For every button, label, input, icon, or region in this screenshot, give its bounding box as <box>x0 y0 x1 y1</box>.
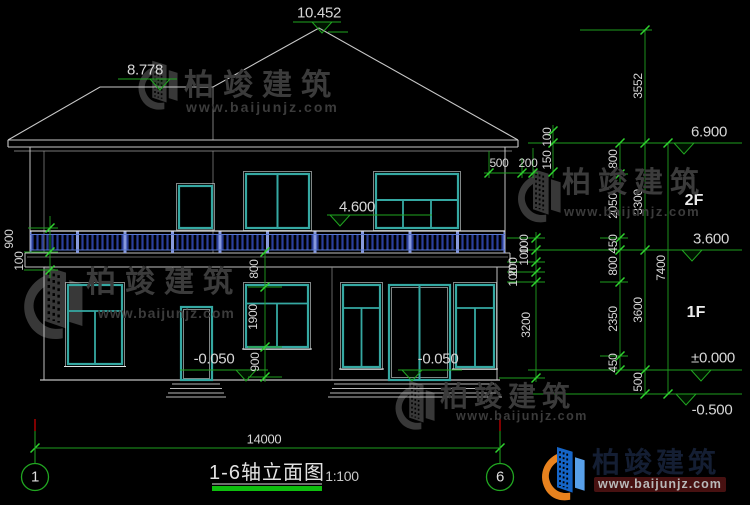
elevation-label-entry-right: -0.050 <box>418 352 459 367</box>
axis-bubble-6: 6 <box>496 470 504 485</box>
watermark-url: www.baijunjz.com <box>98 306 235 320</box>
dim-label: 500 <box>632 372 644 391</box>
watermark-brand: 柏竣建筑 <box>86 268 242 298</box>
dim-label: 800 <box>607 149 619 168</box>
window-frames-2f <box>179 174 458 228</box>
dim-label: 450 <box>607 234 619 253</box>
elevation-label-zero: ±0.000 <box>691 351 735 366</box>
dim-label: 3600 <box>632 297 644 323</box>
dim-label: 7400 <box>655 255 667 281</box>
dim-label: 900 <box>3 229 15 248</box>
floor-label-1f: 1F <box>687 305 706 321</box>
dim-label: 1900 <box>247 304 259 330</box>
watermark-url: www.baijunjz.com <box>186 100 339 114</box>
elevation-label-balcony: 4.600 <box>339 200 375 215</box>
drawing-scale: 1:100 <box>325 469 359 483</box>
dim-label: 100 <box>13 251 25 270</box>
second-floor-openings <box>177 172 461 231</box>
dim-label: 150 <box>541 150 553 169</box>
axis-bubble-1: 1 <box>31 470 39 485</box>
brand-logo-url: www.baijunjz.com <box>594 477 726 492</box>
dim-label: 800 <box>607 256 619 275</box>
dim-label: 200 <box>518 157 537 169</box>
elevation-label-left-ridge: 8.778 <box>127 63 163 78</box>
elevation-label-roof-peak: 10.452 <box>297 6 341 21</box>
drawing-title: 1-6轴立面图 <box>209 463 325 483</box>
dim-label: 3200 <box>520 312 532 338</box>
dim-label: 450 <box>607 353 619 372</box>
dim-label: 2350 <box>607 306 619 332</box>
dim-label: 3552 <box>632 73 644 99</box>
dim-label: 900 <box>249 352 261 371</box>
elevation-label-site-ground: -0.500 <box>692 403 733 418</box>
watermark-brand: 柏竣建筑 <box>562 169 706 198</box>
elevation-label-second-floor: 3.600 <box>693 232 729 247</box>
brand-logo-color <box>542 447 585 500</box>
watermark-url: www.baijunjz.com <box>456 410 588 423</box>
watermark-brand: 柏竣建筑 <box>440 383 576 411</box>
watermark-brand: 柏竣建筑 <box>184 71 340 101</box>
brand-logo-text: 柏竣建筑 <box>592 449 720 477</box>
dim-label: 100 <box>507 267 519 286</box>
elevation-label-entry-left: -0.050 <box>194 352 235 367</box>
title-underline <box>212 484 322 491</box>
dim-label-overall-width: 14000 <box>247 433 282 446</box>
dim-label: 100 <box>541 127 553 146</box>
dim-label: 500 <box>489 157 508 169</box>
elevation-drawing-canvas: 10.452 8.778 6.900 4.600 3.600 ±0.000 -0… <box>0 0 750 505</box>
elevation-label-eave: 6.900 <box>691 125 727 140</box>
watermark-url: www.baijunjz.com <box>564 205 700 218</box>
dim-label: 800 <box>248 259 260 278</box>
